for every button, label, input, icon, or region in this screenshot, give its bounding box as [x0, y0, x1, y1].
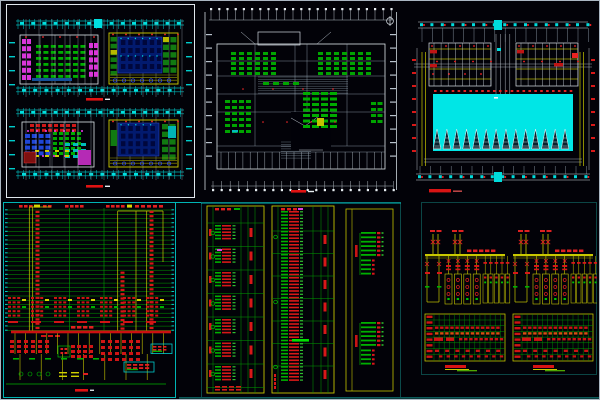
- sheet-single-line-diagrams: [421, 202, 597, 375]
- sheet-unit-floor-plans: [6, 4, 195, 198]
- cad-drawing-sheet-composite[interactable]: [0, 0, 600, 400]
- sheet-circuit-schedules: [201, 202, 401, 399]
- sheet-electrical-riser-diagram: [3, 202, 176, 398]
- sheet-roof-plan-elevation: [406, 4, 598, 198]
- sheet-overall-floor-plan: [203, 4, 399, 198]
- panel-gap-divider-line: [176, 202, 201, 203]
